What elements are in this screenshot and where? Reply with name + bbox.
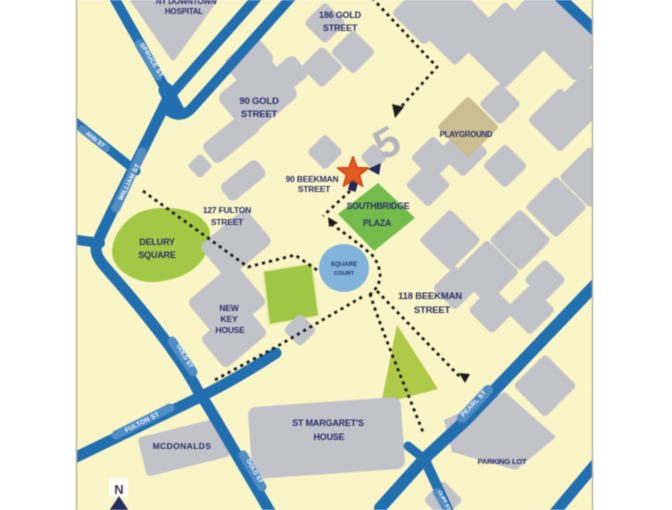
svg-text:STREET: STREET [298, 184, 331, 194]
svg-text:DELURY: DELURY [139, 237, 175, 247]
svg-text:PLAZA: PLAZA [363, 218, 392, 228]
svg-text:STREET: STREET [323, 23, 358, 33]
svg-text:STREET: STREET [211, 217, 244, 227]
svg-text:HOUSE: HOUSE [215, 325, 245, 335]
svg-text:90 BEEKMAN: 90 BEEKMAN [286, 174, 339, 184]
svg-text:SQUARE: SQUARE [138, 250, 176, 260]
svg-text:90 GOLD: 90 GOLD [239, 96, 279, 107]
svg-text:STREET: STREET [241, 109, 278, 120]
svg-text:NEW: NEW [219, 303, 239, 313]
svg-text:HOSPITAL: HOSPITAL [165, 7, 204, 16]
svg-text:ST MARGARET'S: ST MARGARET'S [292, 418, 364, 428]
svg-text:127 FULTON: 127 FULTON [203, 205, 251, 215]
svg-text:118 BEEKMAN: 118 BEEKMAN [398, 291, 462, 302]
svg-text:N: N [114, 482, 123, 497]
svg-text:NY DOWNTOWN: NY DOWNTOWN [156, 0, 217, 6]
svg-text:PARKING LOT: PARKING LOT [478, 457, 528, 466]
svg-text:PLAYGROUND: PLAYGROUND [440, 130, 493, 139]
svg-text:COURT: COURT [334, 271, 355, 277]
svg-text:STREET: STREET [414, 305, 451, 316]
svg-text:SOUTHBRIDGE: SOUTHBRIDGE [347, 201, 410, 211]
svg-text:SQUARE: SQUARE [331, 261, 357, 268]
svg-text:HOUSE: HOUSE [313, 432, 344, 442]
svg-text:KEY: KEY [221, 314, 238, 324]
svg-text:MCDONALDS: MCDONALDS [153, 441, 212, 451]
svg-text:186 GOLD: 186 GOLD [319, 10, 362, 20]
